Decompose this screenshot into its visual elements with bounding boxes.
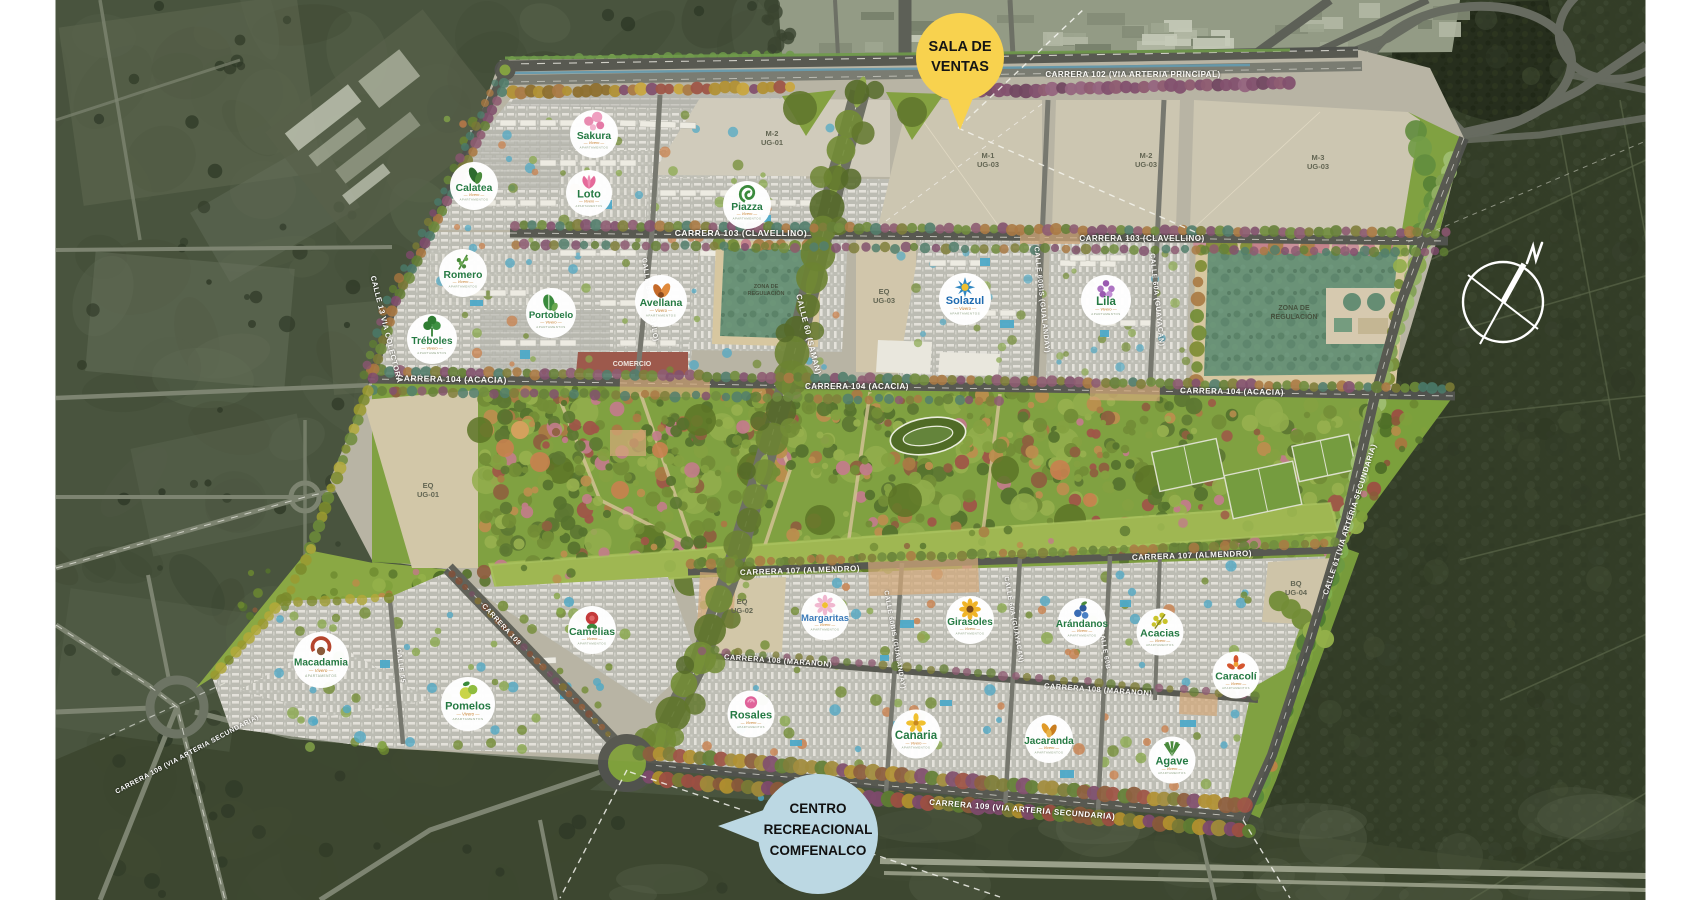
- svg-text:— Vivero —: — Vivero —: [539, 320, 562, 325]
- svg-text:— Vivero —: — Vivero —: [1225, 682, 1247, 686]
- svg-text:Camelias: Camelias: [569, 626, 615, 638]
- svg-text:— Vivero —: — Vivero —: [649, 308, 673, 313]
- svg-text:— Vivero —: — Vivero —: [905, 740, 927, 745]
- svg-text:VENTAS: VENTAS: [931, 59, 989, 75]
- svg-text:APARTAMENTOS: APARTAMENTOS: [417, 351, 446, 355]
- svg-text:— Vivero —: — Vivero —: [953, 306, 977, 311]
- svg-text:APARTAMENTOS: APARTAMENTOS: [733, 216, 762, 220]
- svg-text:APARTAMENTOS: APARTAMENTOS: [811, 627, 840, 631]
- svg-text:APARTAMENTOS: APARTAMENTOS: [902, 746, 931, 750]
- svg-text:— Vivero —: — Vivero —: [308, 668, 334, 673]
- svg-text:— Vivero —: — Vivero —: [740, 721, 762, 725]
- svg-text:APARTAMENTOS: APARTAMENTOS: [460, 197, 489, 201]
- svg-text:APARTAMENTOS: APARTAMENTOS: [1091, 312, 1120, 316]
- svg-text:APARTAMENTOS: APARTAMENTOS: [305, 674, 337, 678]
- svg-text:Rosales: Rosales: [730, 710, 772, 722]
- svg-text:APARTAMENTOS: APARTAMENTOS: [578, 641, 607, 645]
- svg-text:Agave: Agave: [1155, 756, 1188, 768]
- svg-text:APARTAMENTOS: APARTAMENTOS: [580, 145, 609, 149]
- svg-text:— Vivero —: — Vivero —: [455, 711, 480, 716]
- svg-text:— Vivero —: — Vivero —: [1094, 307, 1117, 312]
- svg-text:— Vivero —: — Vivero —: [578, 200, 599, 204]
- svg-text:APARTAMENTOS: APARTAMENTOS: [449, 284, 478, 288]
- svg-text:Caracolí: Caracolí: [1215, 671, 1258, 683]
- svg-text:— Vivero —: — Vivero —: [420, 346, 443, 351]
- svg-text:APARTAMENTOS: APARTAMENTOS: [452, 717, 483, 721]
- svg-text:APARTAMENTOS: APARTAMENTOS: [1035, 750, 1064, 754]
- svg-text:APARTAMENTOS: APARTAMENTOS: [1222, 686, 1250, 690]
- svg-text:COMFENALCO: COMFENALCO: [770, 843, 867, 858]
- svg-text:APARTAMENTOS: APARTAMENTOS: [646, 314, 676, 318]
- svg-text:APARTAMENTOS: APARTAMENTOS: [956, 631, 985, 635]
- svg-text:APARTAMENTOS: APARTAMENTOS: [950, 312, 980, 316]
- svg-text:CENTRO: CENTRO: [790, 801, 847, 816]
- svg-text:APARTAMENTOS: APARTAMENTOS: [576, 204, 603, 208]
- svg-text:APARTAMENTOS: APARTAMENTOS: [1068, 633, 1097, 637]
- svg-text:SALA DE: SALA DE: [928, 39, 991, 55]
- svg-text:— Vivero —: — Vivero —: [1161, 767, 1183, 771]
- svg-text:APARTAMENTOS: APARTAMENTOS: [1158, 771, 1186, 775]
- svg-text:RECREACIONAL: RECREACIONAL: [764, 822, 873, 837]
- svg-text:— Vivero —: — Vivero —: [1149, 639, 1171, 643]
- svg-text:APARTAMENTOS: APARTAMENTOS: [737, 725, 765, 729]
- svg-text:Acacias: Acacias: [1140, 628, 1180, 640]
- svg-text:APARTAMENTOS: APARTAMENTOS: [536, 325, 565, 329]
- svg-text:APARTAMENTOS: APARTAMENTOS: [1146, 643, 1174, 647]
